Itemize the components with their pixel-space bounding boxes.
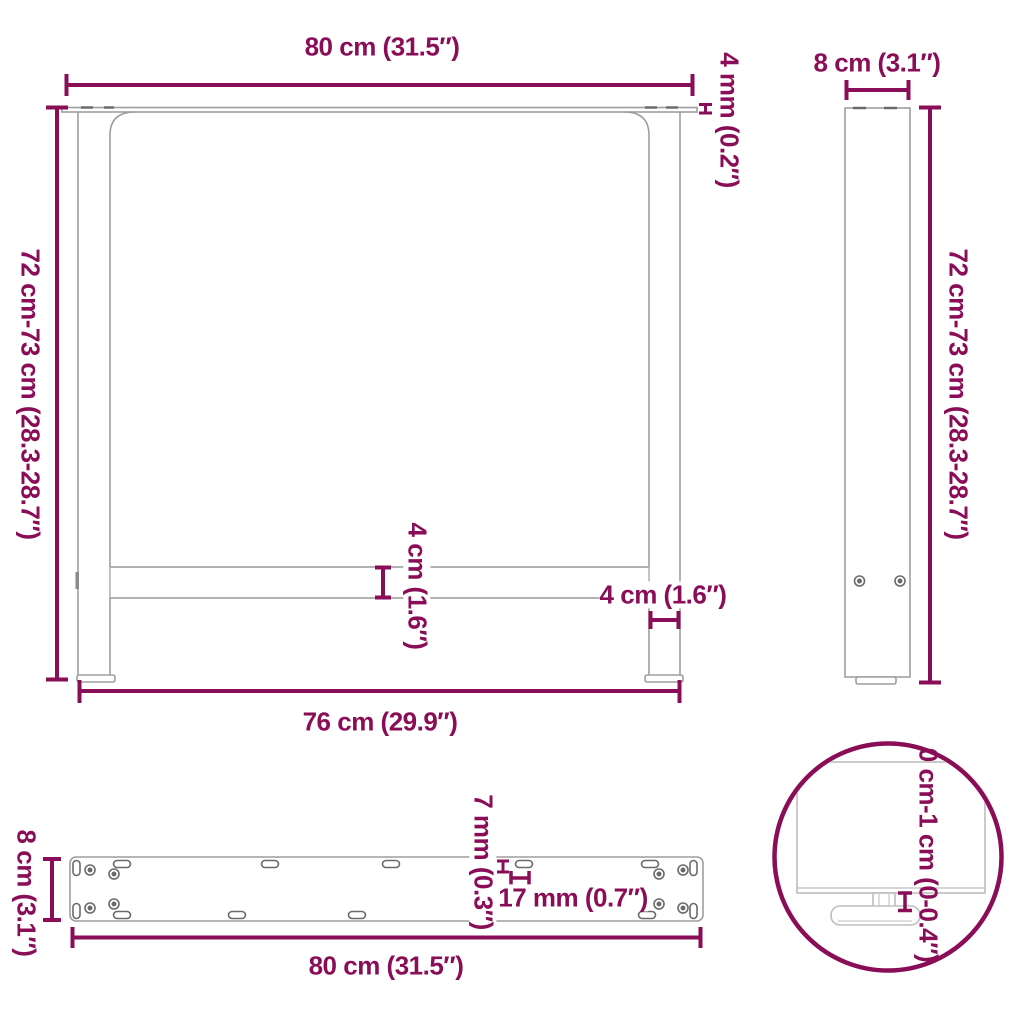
detail-view-drawing — [775, 744, 1002, 971]
detail-foot-adjust-label: 0 cm-1 cm (0-0.4″) — [914, 748, 941, 962]
side-depth-label: 8 cm (3.1″) — [814, 49, 941, 76]
front-leg-width-label: 4 cm (1.6″) — [600, 581, 727, 608]
front-height-label: 72 cm-73 cm (28.3-28.7″) — [16, 249, 43, 540]
side-view-drawing — [845, 108, 910, 684]
plate-width-label: 80 cm (31.5″) — [309, 952, 464, 979]
side-height-label: 72 cm-73 cm (28.3-28.7″) — [944, 249, 971, 540]
dimension-diagram: 80 cm (31.5″) 4 mm (0.2″) 72 cm-73 cm (2… — [0, 0, 1024, 1024]
plate-slot-length-label: 17 mm (0.7″) — [498, 884, 648, 911]
plate-depth-label: 8 cm (3.1″) — [12, 830, 39, 957]
front-crossbar-height-label: 4 cm (1.6″) — [403, 523, 430, 650]
front-plate-thickness-label: 4 mm (0.2″) — [715, 52, 742, 188]
plate-slot-width-label: 7 mm (0.3″) — [469, 794, 496, 930]
diagram-drawing — [0, 0, 1024, 1024]
front-bottom-width-label: 76 cm (29.9″) — [303, 708, 458, 735]
front-top-width-label: 80 cm (31.5″) — [305, 33, 460, 60]
